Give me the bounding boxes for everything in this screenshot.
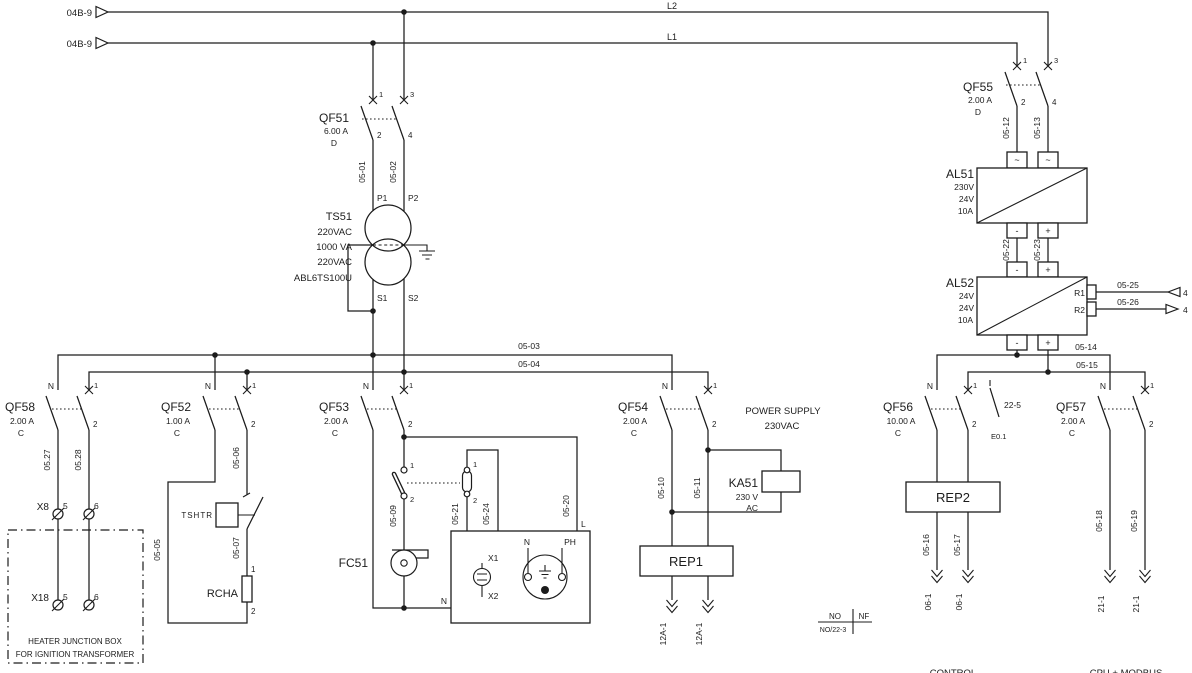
curve: C [332, 428, 338, 438]
aux-contact-ref: 22-5 [1004, 400, 1021, 410]
socket-n-label: N [524, 537, 530, 547]
wire-label: 05-04 [518, 359, 540, 369]
junction-box-label: FOR IGNITION TRANSFORMER [16, 650, 135, 659]
wire-label: 05-01 [357, 161, 367, 183]
wire-label: 05-26 [1117, 297, 1139, 307]
output-current: 10A [958, 206, 973, 216]
breaker-blades [361, 106, 404, 140]
terminal-no: 1 [1150, 381, 1154, 390]
wire-label: 05-07 [231, 537, 241, 559]
output-voltage: 24V [959, 194, 974, 204]
rating: 2.00 A [1061, 416, 1085, 426]
terminal-no: 1 [713, 381, 717, 390]
curve: C [1069, 428, 1075, 438]
fan-impeller-icon [391, 550, 417, 576]
wire-label: 05-21 [450, 503, 460, 525]
terminal-block-id: X18 [31, 593, 49, 604]
terminal-s2: S2 [408, 293, 419, 303]
contact-point [401, 467, 407, 473]
output-current: 10A [958, 315, 973, 325]
terminal-no: 1 [251, 565, 256, 574]
sheet-ref: 21-1 [1131, 595, 1141, 612]
supply-title: POWER SUPPLY [745, 406, 821, 417]
aux-sheet-ref: E0.1 [991, 432, 1006, 441]
section-label: CONTROL [930, 668, 976, 673]
terminal-no: 2 [1021, 98, 1026, 107]
thermostat-tshtr: TSHTR [181, 493, 263, 529]
junction-dot [705, 447, 711, 453]
component-id: QF53 [319, 400, 349, 414]
terminal-x8: X8 5 6 [37, 501, 99, 520]
wire-label: 05-02 [388, 161, 398, 183]
rating: 2.00 A [623, 416, 647, 426]
junction-box-label: HEATER JUNCTION BOX [28, 637, 122, 646]
rating: 2.00 A [324, 416, 348, 426]
junction-dot [401, 9, 407, 15]
breaker-qf53: N 1 2 QF53 2.00 A C 1 2 1 2 05-09 05-21 … [319, 381, 590, 623]
sheet-arrow-icon [932, 570, 974, 583]
terminal-no: 1 [1023, 56, 1027, 65]
bus-wires [937, 355, 1145, 390]
breaker-qf52: N 1 2 QF52 1.00 A C 05-05 05-06 05-07 TS… [152, 381, 263, 623]
wire-label: 05-16 [921, 534, 931, 556]
psu-al51: ~ ~ - + AL51 230V 24V 10A 05-22 05-23 [946, 152, 1087, 262]
aux-blade [990, 388, 999, 417]
sheet-arrow-in-icon [1168, 288, 1180, 297]
source-arrow-icon [96, 7, 108, 18]
terminal-symbol: + [1045, 226, 1050, 236]
terminal-p2: P2 [408, 193, 419, 203]
coil-type: AC [746, 503, 758, 513]
terminal-no: 4 [408, 131, 413, 140]
terminal-symbol: + [1045, 265, 1050, 275]
primary-voltage: 220VAC [317, 227, 352, 238]
terminal-no: 5 [63, 501, 68, 511]
terminal-symbol: ~ [1014, 155, 1019, 165]
sheet-ref: 12A-1 [658, 622, 668, 645]
curve: D [331, 138, 337, 148]
terminal-no: 2 [972, 420, 977, 429]
terminal-no: 1 [410, 461, 414, 470]
door-switch: 1 2 1 2 [394, 460, 477, 505]
terminal-symbol: ~ [1045, 155, 1050, 165]
wire-label: 05.28 [73, 449, 83, 471]
sheet-ref-l1: 04B-9 [67, 39, 92, 50]
terminal-no: 1 [973, 381, 977, 390]
terminal-no: 2 [251, 420, 256, 429]
wire-label: 05-06 [231, 447, 241, 469]
contact-point [464, 491, 470, 497]
sheet-ref: 06-1 [923, 593, 933, 610]
junction-dot [669, 509, 675, 515]
wire-label: 05-15 [1076, 360, 1098, 370]
breaker-blades [46, 396, 89, 430]
sheet-arrow-icon [1105, 570, 1151, 583]
breaker-blades [203, 396, 247, 430]
terminal-no: 6 [94, 592, 99, 602]
terminal-n: N [1100, 381, 1106, 391]
terminal-no: 2 [93, 420, 98, 429]
terminal-no: 2 [473, 496, 477, 505]
interface-rep1: REP1 [640, 546, 733, 576]
socket-box: X1 X2 N PH [451, 531, 590, 623]
heater-resistor [242, 576, 252, 602]
terminal-no: 1 [252, 381, 256, 390]
breaker-qf55: 1 3 2 4 QF55 2.00 A D 05-12 05-13 [963, 56, 1058, 152]
wire-l1-l2 [108, 12, 1048, 100]
terminal-x1: X1 [488, 553, 499, 563]
wire-label: 05-17 [952, 534, 962, 556]
breaker-qf58: N 1 2 QF58 2.00 A C 05.27 05.28 X8 5 6 X… [5, 381, 143, 663]
contact-point [464, 467, 470, 473]
model-ref: ABL6TS100U [294, 273, 352, 284]
relay-output-r1 [1087, 285, 1096, 299]
breaker-blades [361, 396, 404, 430]
component-id: REP1 [669, 554, 703, 569]
terminal-no: 2 [712, 420, 717, 429]
component-id: QF58 [5, 400, 35, 414]
input-voltage: 230V [954, 182, 974, 192]
terminal-no: 2 [251, 607, 256, 616]
junction-dot [1014, 352, 1020, 358]
neutral-marker: N [441, 596, 447, 606]
junction-dot [244, 369, 250, 375]
bus-wires [58, 355, 708, 390]
component-id: FC51 [339, 556, 369, 570]
contact-point [401, 493, 407, 499]
primary-winding-icon [365, 205, 411, 251]
coil-voltage: 230 V [736, 492, 759, 502]
wire-label: 05-09 [388, 505, 398, 527]
interface-rep2: REP2 [906, 482, 1000, 512]
junction-dot [370, 40, 376, 46]
terminal-no: 1 [409, 381, 413, 390]
earth-pin [541, 586, 549, 594]
transformer-ts51: TS51 220VAC 1000 VA 220VAC ABL6TS100U S1… [294, 205, 435, 390]
terminal-x-icon [1013, 62, 1052, 70]
terminal-s1: S1 [377, 293, 388, 303]
breaker-blades [1005, 72, 1048, 106]
secondary-winding-icon [365, 239, 411, 285]
curve: C [895, 428, 901, 438]
terminal-symbol: - [1016, 226, 1019, 236]
component-id: REP2 [936, 490, 970, 505]
switch-blade-core [394, 474, 403, 493]
input-voltage: 24V [959, 291, 974, 301]
secondary-voltage: 220VAC [317, 257, 352, 268]
wire-label: 05-10 [656, 477, 666, 499]
component-id: QF55 [963, 80, 993, 94]
terminal-no: 1 [379, 90, 383, 99]
rating: 6.00 A [324, 126, 348, 136]
terminal-r1: R1 [1074, 288, 1085, 298]
breaker-blades [660, 396, 708, 430]
sheet-ref: 12A-1 [694, 622, 704, 645]
breaker-qf57: N 1 2 QF57 2.00 A C 05-18 05-19 21-1 21-… [1056, 381, 1162, 673]
component-id: QF56 [883, 400, 913, 414]
wire-label: 05-12 [1001, 117, 1011, 139]
component-id: AL51 [946, 167, 974, 181]
component-id: QF51 [319, 111, 349, 125]
wire-label: 05-05 [152, 539, 162, 561]
label-l1: L1 [667, 32, 677, 42]
linked-contact-capsule [463, 471, 472, 492]
col-nf: NF [859, 612, 870, 621]
schematic-page: 04B-9 04B-9 L2 L1 1 3 2 4 QF51 6.00 A D … [0, 0, 1192, 673]
thermostat-label: TSHTR [181, 511, 213, 520]
wire-label: 05-24 [481, 503, 491, 525]
terminal-symbol: - [1016, 265, 1019, 275]
breaker-qf54: N 1 2 QF54 2.00 A C POWER SUPPLY 230VAC … [618, 381, 872, 645]
col-no: NO [829, 612, 841, 621]
breaker-qf56: N 1 2 QF56 10.00 A C 22-5 E0.1 REP2 05-1… [883, 380, 1021, 673]
wire-label: 05-13 [1032, 117, 1042, 139]
relay-ka51: KA51 230 V AC [729, 471, 800, 513]
breaker-qf51: 1 3 2 4 QF51 6.00 A D 05-01 05-02 P1 P2 [319, 90, 419, 211]
supply-voltage: 230VAC [765, 421, 800, 432]
terminal-no: 2 [408, 420, 413, 429]
wire-label: 05-18 [1094, 510, 1104, 532]
terminal-no: 3 [1054, 56, 1058, 65]
sheet-arrow-icon [667, 600, 714, 613]
curve: C [174, 428, 180, 438]
schematic-canvas: 04B-9 04B-9 L2 L1 1 3 2 4 QF51 6.00 A D … [0, 0, 1192, 673]
terminal-symbol: + [1045, 338, 1050, 348]
power-rating: 1000 VA [316, 242, 352, 253]
distribution-bus: 05-03 05-04 [58, 341, 708, 390]
breaker-blades [1098, 396, 1145, 430]
terminal-symbol: - [1016, 338, 1019, 348]
junction-dot [401, 605, 407, 611]
wire-label: 05-14 [1075, 342, 1097, 352]
wire-label: 05-23 [1032, 239, 1042, 261]
rating: 2.00 A [968, 95, 992, 105]
terminal-p1: P1 [377, 193, 388, 203]
junction-dot [370, 352, 376, 358]
component-id: QF52 [161, 400, 191, 414]
wire-label: 05-19 [1129, 510, 1139, 532]
curve: D [975, 107, 981, 117]
wire-label: 05-25 [1117, 280, 1139, 290]
terminal-r2: R2 [1074, 305, 1085, 315]
terminal-x-icon [369, 96, 408, 104]
label-l2: L2 [667, 1, 677, 11]
section-label: CPU + MODBUS [1090, 668, 1163, 673]
wire-label: 05-11 [692, 477, 702, 498]
fan-fc51: FC51 [339, 550, 428, 576]
rating: 1.00 A [166, 416, 190, 426]
source-arrow-icon [96, 38, 108, 49]
relay-coil [762, 471, 800, 492]
rating: 10.00 A [887, 416, 916, 426]
terminal-no: 2 [1149, 420, 1154, 429]
wire-label: 05.27 [42, 449, 52, 471]
wire-label: 05-22 [1001, 239, 1011, 261]
junction-dot [401, 369, 407, 375]
output-voltage: 24V [959, 303, 974, 313]
junction-dot [1045, 369, 1051, 375]
contact-cross-ref-table: NO NF NO/22-3 [818, 609, 872, 634]
feeder-lines: 04B-9 04B-9 L2 L1 [67, 1, 1048, 100]
component-id: QF57 [1056, 400, 1086, 414]
terminal-no: 2 [377, 131, 382, 140]
rating: 2.00 A [10, 416, 34, 426]
component-id: QF54 [618, 400, 648, 414]
sheet-ref: 06-1 [954, 593, 964, 610]
breaker-blades [925, 396, 968, 430]
thermostat-body [216, 503, 238, 527]
terminal-no: 1 [473, 460, 477, 469]
terminal-n: N [363, 381, 369, 391]
terminal-block-id: X8 [37, 502, 50, 513]
sheet-arrow-out-icon [1166, 305, 1178, 314]
curve: C [18, 428, 24, 438]
junction-dot [212, 352, 218, 358]
terminal-x2: X2 [488, 591, 499, 601]
sheet-ref-l2: 04B-9 [67, 8, 92, 19]
sheet-ref: 21-1 [1096, 595, 1106, 612]
component-id: TS51 [326, 211, 352, 223]
relay-output-r2 [1087, 302, 1096, 316]
terminal-no: 4 [1052, 98, 1057, 107]
terminal-no: 3 [410, 90, 414, 99]
output-wires [1017, 350, 1048, 372]
terminal-no: 2 [410, 495, 414, 504]
heater-label: RCHA [207, 588, 239, 600]
wire-label: 05-20 [561, 495, 571, 517]
heater-rcha: 1 RCHA 2 [207, 565, 256, 616]
terminal-no: 6 [94, 501, 99, 511]
terminal-n: N [48, 381, 54, 391]
terminal-n: N [927, 381, 933, 391]
aux-contact-22-5: 22-5 E0.1 [990, 380, 1021, 441]
component-id: AL52 [946, 276, 974, 290]
contact-blade [247, 497, 263, 529]
curve: C [631, 428, 637, 438]
wires [1110, 430, 1145, 570]
terminal-no: 5 [63, 592, 68, 602]
component-id: KA51 [729, 476, 759, 490]
socket-ph-label: PH [564, 537, 576, 547]
sheet-ref-partial: 4 [1183, 288, 1188, 298]
wire-label: 05-03 [518, 341, 540, 351]
terminal-n: N [205, 381, 211, 391]
terminal-no: 1 [94, 381, 98, 390]
contact-ref: NO/22-3 [820, 627, 847, 634]
terminal-n: N [662, 381, 668, 391]
junction-dot [401, 434, 407, 440]
line-marker: L [581, 519, 586, 529]
sheet-ref-partial: 4 [1183, 305, 1188, 315]
